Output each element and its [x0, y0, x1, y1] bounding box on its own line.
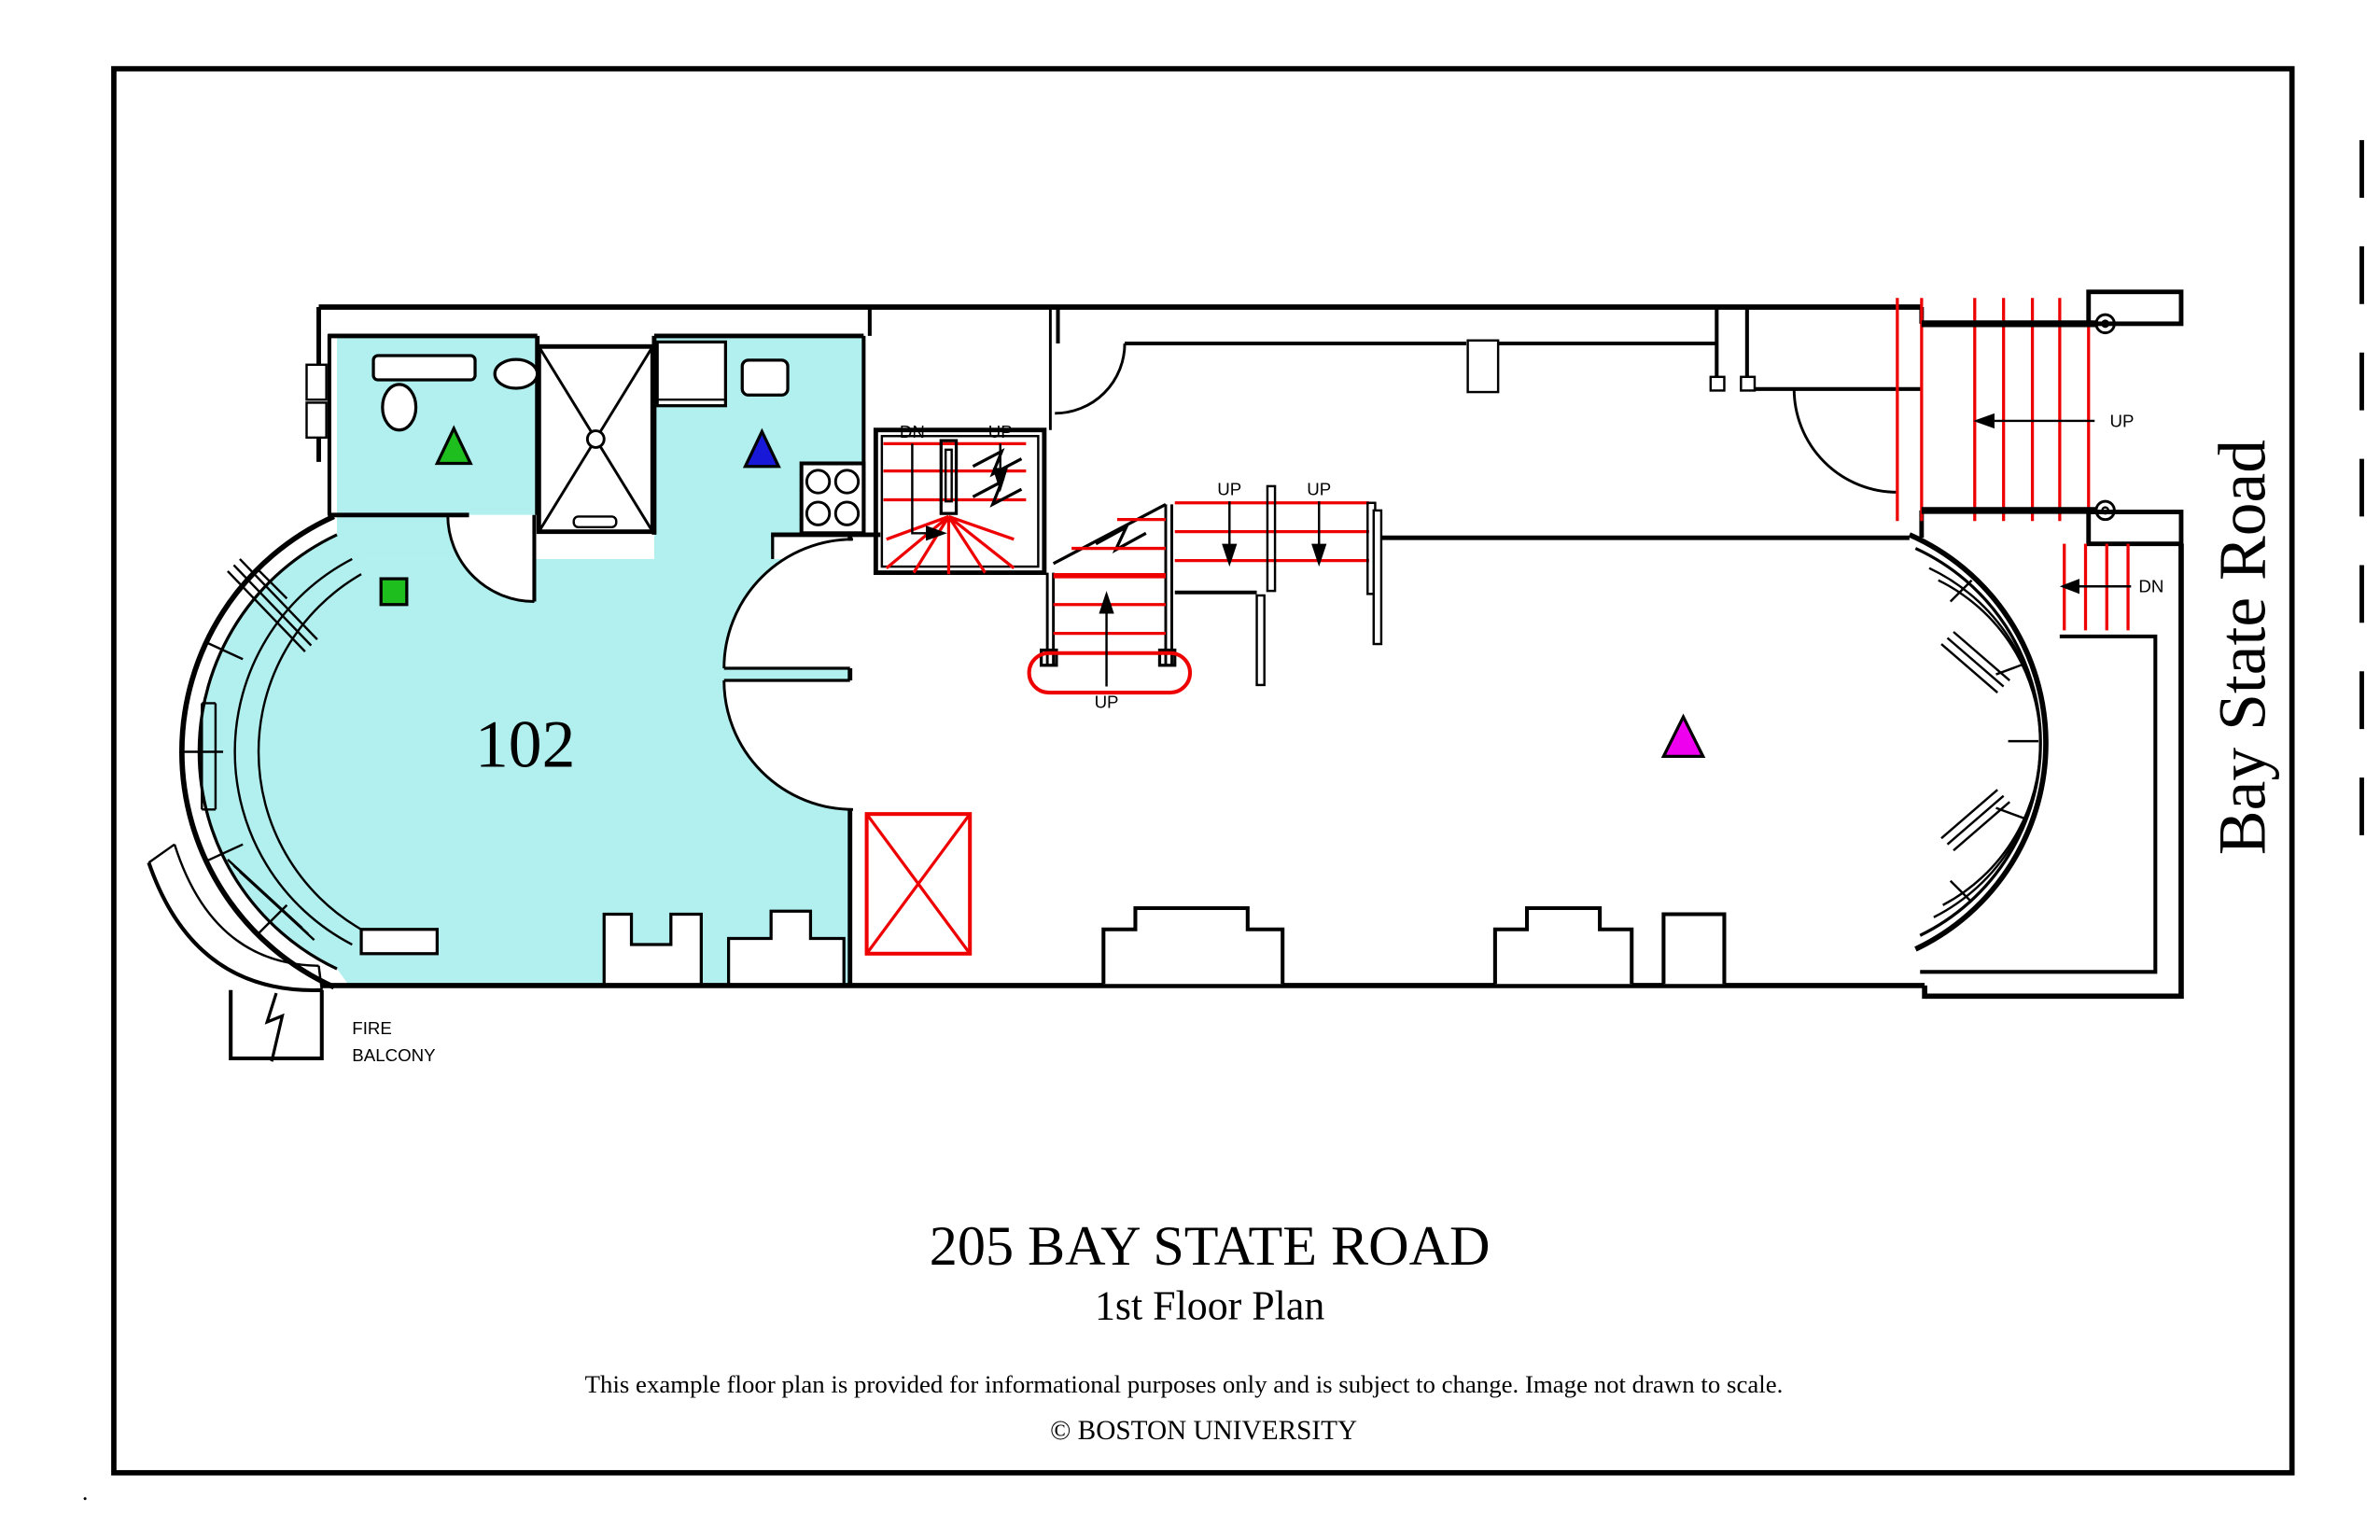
plan-copyright: © BOSTON UNIVERSITY: [1050, 1416, 1357, 1446]
bathroom-counter: [373, 356, 475, 380]
plan-disclaimer: This example floor plan is provided for …: [585, 1370, 1784, 1398]
plan-title: 205 BAY STATE ROAD: [930, 1215, 1491, 1278]
corner-mark: .: [82, 1478, 89, 1505]
floor-plan: DN UP UP UP UP: [0, 0, 2380, 1540]
toilet-icon: [383, 385, 416, 430]
sink-icon: [495, 359, 538, 388]
room-102-label: 102: [475, 708, 575, 782]
winder-up-label: UP: [988, 422, 1013, 441]
winder-dn-label: DN: [900, 422, 925, 441]
fire-balcony-label-line2: BALCONY: [352, 1045, 436, 1065]
stove-icon: [802, 463, 864, 533]
bay-state-road-label: Bay State Road: [2205, 440, 2279, 855]
kitchen-sink-icon: [742, 360, 788, 395]
entry-up-label: UP: [2110, 411, 2135, 430]
page: { "document": { "title": "205 BAY STATE …: [0, 0, 2380, 1540]
plan-subtitle: 1st Floor Plan: [1095, 1284, 1324, 1329]
shower-box: [539, 346, 652, 531]
fire-balcony-label-line1: FIRE: [352, 1018, 392, 1038]
elevator-icon: [867, 814, 971, 954]
hall-up-label: UP: [1095, 692, 1119, 711]
corridor-up-right-label: UP: [1307, 480, 1331, 499]
room-102-marker-green-square: [381, 579, 407, 605]
fridge-icon: [657, 342, 725, 405]
corridor-up-left-label: UP: [1217, 480, 1241, 499]
entry-dn-label: DN: [2138, 577, 2163, 596]
